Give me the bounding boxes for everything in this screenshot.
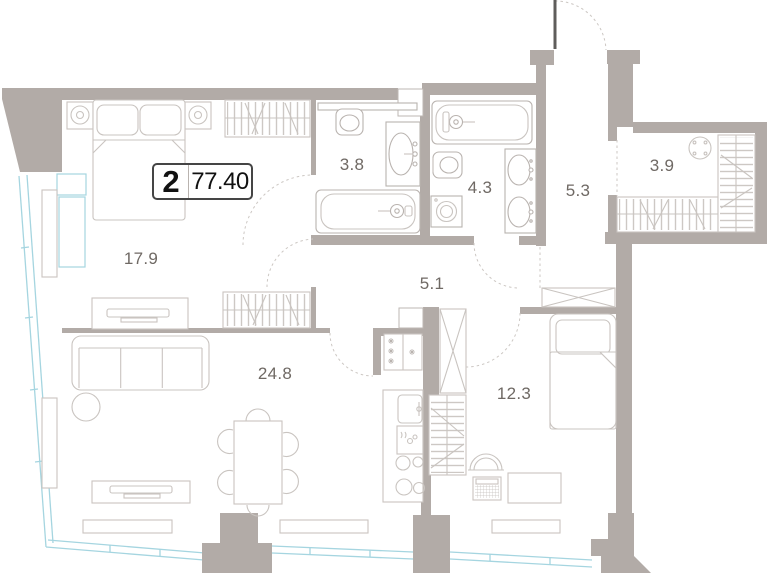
room-area-label-wardrobe-room: 3.9 — [650, 156, 675, 176]
bathroom-2-fixtures — [431, 101, 536, 233]
radiator — [83, 520, 172, 533]
room-area-label-corridor: 5.1 — [420, 274, 445, 294]
armchair — [470, 454, 502, 470]
chair — [283, 470, 298, 494]
kitchen-counter — [383, 390, 423, 502]
door-arc-bedroom-2 — [466, 313, 520, 367]
double-bed — [93, 100, 185, 220]
side-table — [72, 393, 100, 421]
unit-rooms-count: 2 — [154, 165, 189, 198]
room-area-label-hallway: 5.3 — [566, 181, 591, 201]
room-area-label-bathroom-2: 4.3 — [468, 178, 493, 198]
door-arc-bathroom-2 — [474, 243, 519, 288]
dining-table — [234, 421, 282, 504]
room-area-label-bathroom: 3.8 — [340, 155, 365, 175]
floor-plan-svg — [0, 0, 767, 573]
bathtub — [432, 101, 532, 144]
room-area-label-bedroom-2: 12.3 — [497, 384, 531, 404]
bedroom-2-furniture — [429, 309, 616, 533]
fan-icon — [689, 137, 711, 159]
hallway-furniture — [542, 288, 615, 307]
door-arc-bedroom — [267, 239, 313, 287]
chair — [218, 471, 233, 495]
chair — [218, 430, 233, 454]
sink — [508, 155, 530, 185]
radiator — [280, 520, 368, 533]
unit-area-value: 77.40 — [189, 168, 251, 196]
sink — [508, 197, 530, 227]
tv-stand — [92, 298, 188, 329]
tv-stand-2 — [92, 481, 190, 503]
bathtub — [316, 190, 420, 233]
bathroom-fixtures — [316, 103, 420, 233]
wardrobe-room-furniture — [617, 135, 755, 232]
radiator — [42, 190, 57, 277]
floor-plan: 17.924.83.84.35.33.95.112.3 2 77.40 — [0, 0, 767, 573]
door-arc-living — [330, 333, 373, 376]
shelf — [318, 103, 417, 110]
opening-dashes — [540, 140, 617, 288]
chair — [246, 409, 270, 421]
vent-shaft-2 — [399, 308, 423, 328]
sofa — [72, 336, 209, 390]
room-area-label-living-kitchen: 24.8 — [258, 364, 292, 384]
kitchen-furniture — [383, 334, 425, 502]
room-area-label-bedroom: 17.9 — [124, 249, 158, 269]
radiator — [492, 520, 560, 533]
desk — [508, 473, 561, 503]
living-room-furniture — [42, 336, 368, 533]
single-bed — [550, 314, 616, 429]
chair — [283, 432, 298, 456]
radiator — [42, 398, 57, 488]
door-arc-bathroom — [243, 175, 313, 245]
door-arc-entry — [555, 1, 606, 50]
unit-badge: 2 77.40 — [152, 163, 253, 200]
